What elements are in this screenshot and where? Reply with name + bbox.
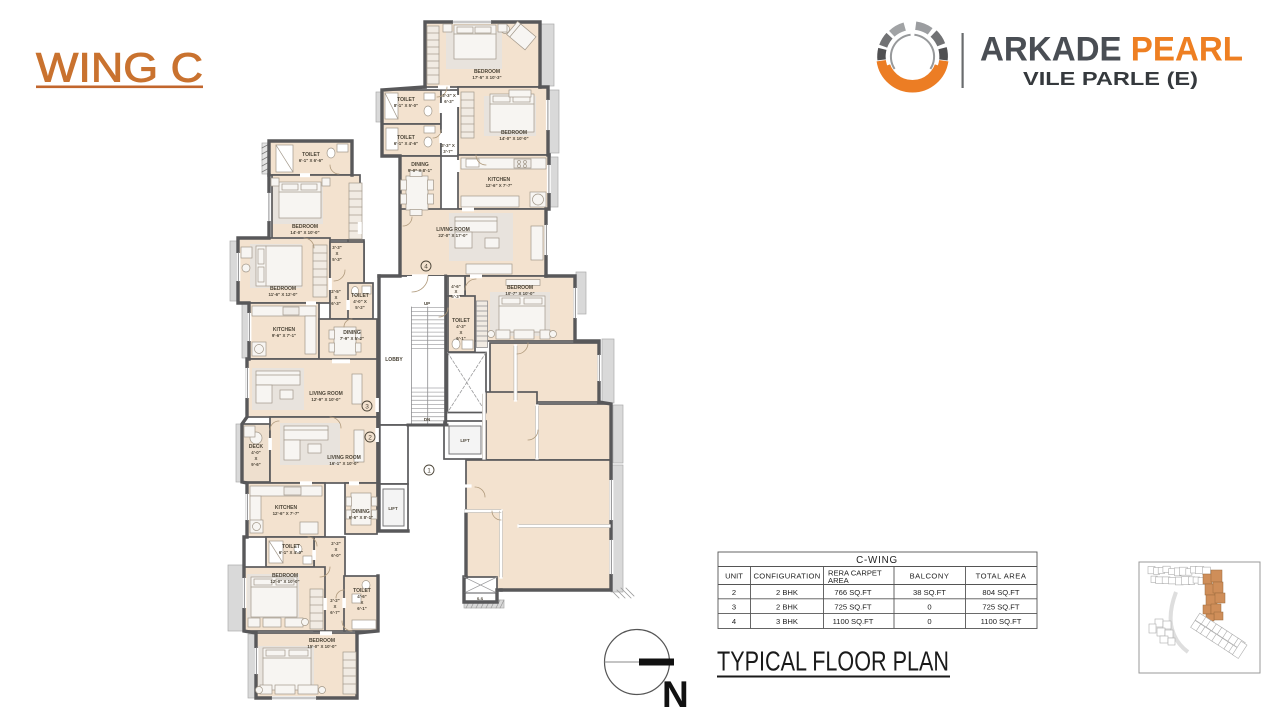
svg-text:12'-6" X 7'-7": 12'-6" X 7'-7" <box>273 511 300 516</box>
svg-text:2: 2 <box>732 588 736 597</box>
svg-text:3'-3" X: 3'-3" X <box>441 143 455 148</box>
svg-text:15'-0" X 10'-0": 15'-0" X 10'-0" <box>307 644 336 649</box>
svg-text:3'-7": 3'-7" <box>443 149 452 154</box>
svg-text:3: 3 <box>365 404 369 411</box>
svg-text:C-WING: C-WING <box>856 555 898 566</box>
svg-text:LIFT: LIFT <box>460 438 470 443</box>
svg-text:4: 4 <box>424 264 428 271</box>
svg-text:3'-3" X: 3'-3" X <box>442 93 456 98</box>
svg-text:X: X <box>335 295 338 300</box>
svg-text:6'-1": 6'-1" <box>357 606 366 611</box>
svg-text:7'-9" X 5'-2": 7'-9" X 5'-2" <box>340 336 364 341</box>
svg-text:725 SQ.FT: 725 SQ.FT <box>982 603 1019 612</box>
svg-text:4'-0": 4'-0" <box>251 450 260 455</box>
svg-text:TOTAL AREA: TOTAL AREA <box>976 572 1027 581</box>
svg-text:3 BHK: 3 BHK <box>776 617 798 626</box>
svg-text:14'-0" X 10'-0": 14'-0" X 10'-0" <box>290 230 319 235</box>
svg-text:3: 3 <box>732 603 736 612</box>
svg-text:DN: DN <box>424 417 430 422</box>
svg-text:2'-2": 2'-2" <box>330 598 339 603</box>
svg-text:0: 0 <box>927 603 931 612</box>
svg-text:17'-5" X 10'-3": 17'-5" X 10'-3" <box>472 75 501 80</box>
svg-text:0: 0 <box>927 617 931 626</box>
svg-text:12'-0" X 10'-0": 12'-0" X 10'-0" <box>270 579 299 584</box>
svg-text:4'-6": 4'-6" <box>357 594 366 599</box>
svg-text:4'-0" X: 4'-0" X <box>353 299 367 304</box>
svg-text:S.S: S.S <box>477 596 484 601</box>
svg-text:2'-5": 2'-5" <box>331 289 340 294</box>
svg-text:LOBBY: LOBBY <box>385 357 403 363</box>
svg-text:X: X <box>460 330 463 335</box>
svg-text:4: 4 <box>732 617 736 626</box>
svg-text:8'-1" X 5'-0": 8'-1" X 5'-0" <box>394 103 418 108</box>
svg-text:2: 2 <box>368 435 372 442</box>
svg-text:10'-7" X 10'-0": 10'-7" X 10'-0" <box>505 291 534 296</box>
svg-text:9'-6": 9'-6" <box>251 462 260 467</box>
svg-text:6'-0": 6'-0" <box>331 553 340 558</box>
svg-text:ARKADE PEARL: ARKADE PEARL <box>980 31 1243 69</box>
svg-text:UP: UP <box>424 301 430 306</box>
svg-text:6'-3": 6'-3" <box>444 99 453 104</box>
svg-text:725 SQ.FT: 725 SQ.FT <box>834 603 871 612</box>
svg-text:766 SQ.FT: 766 SQ.FT <box>834 588 871 597</box>
svg-text:X: X <box>336 251 339 256</box>
svg-text:9'-0" X 8'-1": 9'-0" X 8'-1" <box>408 168 432 173</box>
svg-text:1: 1 <box>427 468 431 475</box>
svg-text:X: X <box>335 547 338 552</box>
svg-text:CONFIGURATION: CONFIGURATION <box>753 572 820 581</box>
svg-text:X: X <box>334 604 337 609</box>
svg-text:LIFT: LIFT <box>388 506 398 511</box>
svg-text:6'-1" X 4'-6": 6'-1" X 4'-6" <box>394 141 418 146</box>
svg-text:X: X <box>255 456 258 461</box>
svg-text:16'-1" X 10'-0": 16'-1" X 10'-0" <box>329 461 358 466</box>
svg-text:1100 SQ.FT: 1100 SQ.FT <box>833 617 874 626</box>
svg-text:6'-3": 6'-3" <box>331 301 340 306</box>
svg-text:5'-2": 5'-2" <box>355 305 364 310</box>
svg-text:2'-2": 2'-2" <box>331 541 340 546</box>
svg-text:X: X <box>361 600 364 605</box>
svg-text:TYPICAL FLOOR PLAN: TYPICAL FLOOR PLAN <box>717 646 949 677</box>
svg-text:AREA: AREA <box>828 576 850 585</box>
svg-text:3'-3": 3'-3" <box>332 245 341 250</box>
svg-text:1100 SQ.FT: 1100 SQ.FT <box>981 617 1022 626</box>
svg-text:WING C: WING C <box>36 45 203 91</box>
svg-text:5'-3": 5'-3" <box>451 294 460 299</box>
svg-text:BALCONY: BALCONY <box>910 572 950 581</box>
svg-text:UNIT: UNIT <box>725 572 743 581</box>
svg-text:4'-3": 4'-3" <box>456 324 465 329</box>
svg-text:9'-6" X 7'-1": 9'-6" X 7'-1" <box>272 333 296 338</box>
svg-text:38 SQ.FT: 38 SQ.FT <box>913 588 946 597</box>
svg-text:6'-1" X 4'-0": 6'-1" X 4'-0" <box>279 550 303 555</box>
svg-text:N: N <box>662 674 689 715</box>
svg-text:5'-3": 5'-3" <box>332 257 341 262</box>
svg-text:14'-0" X 10'-0": 14'-0" X 10'-0" <box>499 136 528 141</box>
svg-text:804 SQ.FT: 804 SQ.FT <box>982 588 1019 597</box>
svg-text:2 BHK: 2 BHK <box>776 603 798 612</box>
svg-text:11'-6" X 12'-0": 11'-6" X 12'-0" <box>269 292 298 297</box>
svg-text:VILE PARLE (E): VILE PARLE (E) <box>1023 69 1198 89</box>
svg-text:6'-5" X 8'-1": 6'-5" X 8'-1" <box>349 515 373 520</box>
svg-text:2 BHK: 2 BHK <box>776 588 798 597</box>
svg-text:12'-6" X 7'-7": 12'-6" X 7'-7" <box>486 183 513 188</box>
svg-text:6'-1" X 6'-6": 6'-1" X 6'-6" <box>299 158 323 163</box>
svg-text:6'-7": 6'-7" <box>330 610 339 615</box>
svg-text:6'-1": 6'-1" <box>456 336 465 341</box>
svg-text:12'-9" X 10'-0": 12'-9" X 10'-0" <box>311 397 340 402</box>
svg-text:22'-0" X 17'-0": 22'-0" X 17'-0" <box>438 233 467 238</box>
